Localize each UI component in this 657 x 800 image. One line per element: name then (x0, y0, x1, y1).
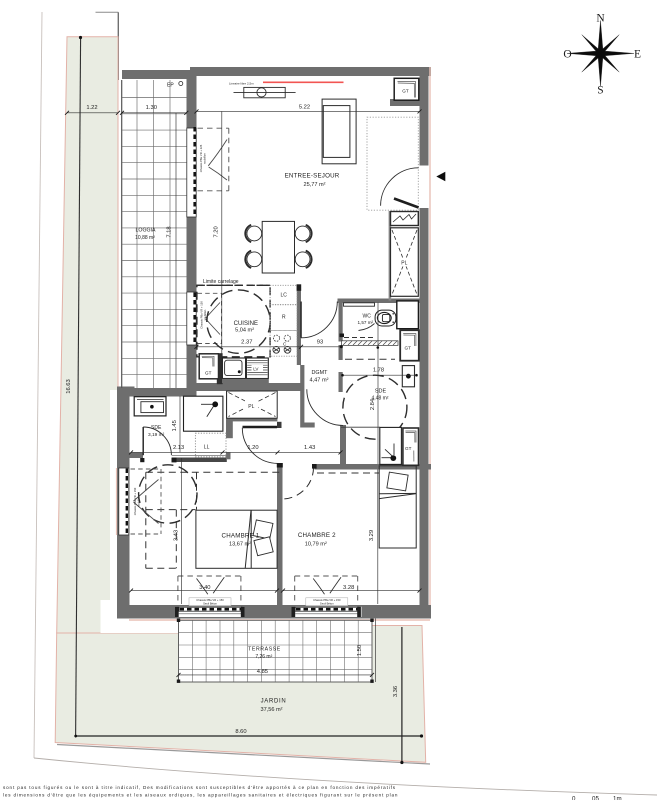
svg-text:soubillon: soubillon (203, 153, 207, 164)
svg-text:2.84: 2.84 (370, 398, 376, 410)
svg-text:3.29: 3.29 (369, 530, 375, 541)
svg-text:Chassis PBa VR + 150: Chassis PBa VR + 150 (199, 301, 203, 329)
svg-text:ENTREE-SEJOUR: ENTREE-SEJOUR (285, 173, 340, 180)
svg-text:4.85: 4.85 (257, 669, 268, 675)
svg-text:05: 05 (592, 796, 599, 800)
svg-text:4,47 m²: 4,47 m² (310, 378, 329, 384)
svg-text:S: S (597, 85, 603, 97)
svg-text:7,26 m²: 7,26 m² (255, 654, 272, 660)
svg-text:Chassis PBa VR + 150: Chassis PBa VR + 150 (133, 487, 137, 515)
svg-text:N: N (596, 13, 605, 25)
svg-text:TERRASSE: TERRASSE (248, 647, 281, 653)
svg-text:E: E (634, 49, 641, 61)
svg-text:1m: 1m (613, 796, 622, 800)
svg-text:LOGGIA: LOGGIA (136, 228, 156, 234)
svg-text:1.20: 1.20 (247, 445, 258, 451)
svg-text:CHAMBRE 1: CHAMBRE 1 (222, 533, 260, 540)
svg-text:1.22: 1.22 (86, 105, 97, 111)
svg-text:soubillon: soubillon (137, 496, 141, 507)
svg-text:Chassis PBa VR + 225: Chassis PBa VR + 225 (199, 144, 203, 172)
svg-text:16.63: 16.63 (66, 379, 72, 394)
svg-text:2.13: 2.13 (173, 445, 184, 451)
svg-text:1.43: 1.43 (304, 445, 315, 451)
svg-text:LC: LC (281, 292, 288, 298)
svg-text:13,67 m²: 13,67 m² (229, 542, 251, 548)
svg-text:1.78: 1.78 (373, 367, 384, 373)
svg-text:O: O (563, 49, 571, 61)
svg-text:8.60: 8.60 (235, 729, 246, 735)
svg-text:R: R (282, 314, 286, 320)
svg-text:Lineaire libre 2,5m: Lineaire libre 2,5m (229, 82, 254, 86)
svg-text:3.40: 3.40 (199, 585, 210, 591)
svg-text:SDE: SDE (375, 388, 387, 394)
svg-text:7.20: 7.20 (213, 226, 219, 237)
svg-text:3.28: 3.28 (343, 585, 354, 591)
svg-text:3.43: 3.43 (173, 530, 179, 541)
svg-text:PL: PL (248, 404, 254, 410)
svg-text:37,56 m²: 37,56 m² (260, 707, 282, 713)
svg-text:1.45: 1.45 (172, 420, 178, 431)
svg-text:les dimensions d'être que les: les dimensions d'être que les équipement… (3, 793, 398, 798)
svg-text:1,57 m²: 1,57 m² (358, 320, 374, 325)
svg-text:1.30: 1.30 (146, 105, 157, 111)
svg-text:CUISINE: CUISINE (234, 321, 258, 327)
svg-text:soubillon: soubillon (203, 309, 207, 320)
svg-text:10,79 m²: 10,79 m² (305, 541, 327, 547)
svg-text:Chassis PBa VR + 150: Chassis PBa VR + 150 (313, 598, 341, 602)
svg-text:1.50: 1.50 (357, 645, 363, 656)
svg-text:2.37: 2.37 (241, 340, 252, 346)
svg-text:GT: GT (405, 446, 412, 451)
svg-text:Chassis PBa VR + 150: Chassis PBa VR + 150 (196, 598, 224, 602)
svg-text:5,04 m²: 5,04 m² (235, 328, 254, 334)
svg-text:Limite carrelage: Limite carrelage (203, 279, 239, 285)
svg-text:PL: PL (401, 261, 407, 267)
svg-text:GT: GT (205, 370, 212, 375)
svg-text:LL: LL (204, 445, 210, 451)
svg-text:25,77 m²: 25,77 m² (303, 182, 325, 188)
svg-text:DGMT: DGMT (312, 370, 329, 376)
svg-text:JARDIN: JARDIN (261, 699, 287, 705)
svg-text:CHAMBRE 2: CHAMBRE 2 (298, 532, 336, 539)
svg-text:GT: GT (405, 346, 412, 351)
svg-text:0: 0 (572, 796, 576, 800)
svg-text:10,88 m²: 10,88 m² (135, 235, 155, 241)
svg-text:WC: WC (363, 314, 372, 320)
svg-text:5.22: 5.22 (299, 105, 310, 111)
svg-text:3.36: 3.36 (393, 686, 399, 697)
svg-text:LV: LV (253, 366, 259, 371)
svg-text:93: 93 (317, 340, 323, 346)
svg-text:GT: GT (402, 88, 409, 93)
svg-text:Seuil Béton: Seuil Béton (320, 602, 334, 606)
svg-text:sont pas tous figurés ou le so: sont pas tous figurés ou le sont à titre… (3, 785, 396, 790)
svg-text:EP: EP (167, 83, 174, 89)
svg-text:Seuil Béton: Seuil Béton (203, 602, 217, 606)
svg-text:7.18: 7.18 (167, 226, 173, 237)
